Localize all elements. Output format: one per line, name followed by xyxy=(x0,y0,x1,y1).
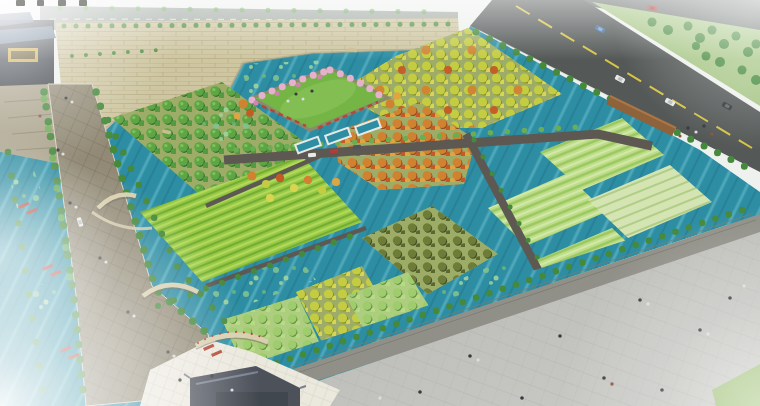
aerial-rendering xyxy=(0,0,760,406)
haze-vignette xyxy=(0,0,760,406)
aerial-rendering-stage xyxy=(0,0,760,406)
overall-veil xyxy=(0,0,760,406)
